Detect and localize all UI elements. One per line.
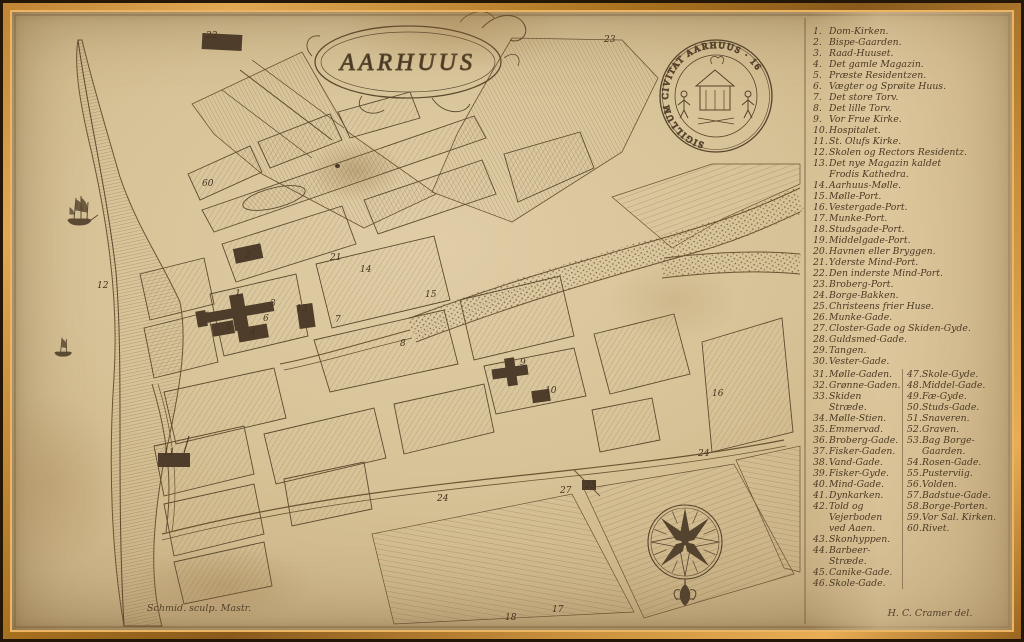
map-number-label: 15 — [425, 290, 437, 300]
ink-fleck — [335, 164, 340, 168]
legend-item: 23.Broberg-Port. — [813, 279, 1009, 290]
map-paper: AARHUUS — [12, 12, 1012, 630]
legend-item-label: Studs-Gade. — [922, 402, 1009, 413]
legend-item: 33.Skiden Stræde. — [813, 391, 902, 413]
legend-item-number: 35. — [813, 424, 829, 435]
map-number-label: 16 — [712, 389, 724, 399]
map-title: AARHUUS — [338, 50, 476, 76]
legend-item-number: 60. — [907, 523, 922, 534]
legend-item-number: 4. — [813, 59, 829, 70]
map-number-label: 14 — [360, 265, 372, 275]
legend-list-right: 47.Skole-Gyde.48.Middel-Gade.49.Fæ-Gyde.… — [902, 369, 1009, 589]
legend-item: 41.Dynkarken. — [813, 490, 902, 501]
legend-item-number: 8. — [813, 103, 829, 114]
legend-item-number: 47. — [907, 369, 922, 380]
legend-panel: 1.Dom-Kirken.2.Bispe-Gaarden.3.Raad-Huus… — [813, 26, 1009, 589]
legend-item-label: Vand-Gade. — [829, 457, 902, 468]
fields — [372, 446, 800, 624]
legend-item-label: Præste Residentzen. — [829, 70, 1009, 81]
legend-item-label: Told og Vejerboden ved Aaen. — [829, 501, 902, 534]
map-number-label: 24 — [697, 449, 710, 459]
seal-figure-left — [678, 91, 690, 118]
legend-item-number: 16. — [813, 202, 829, 213]
map-number-label: 7 — [335, 315, 341, 325]
legend-item: 27.Closter-Gade og Skiden-Gyde. — [813, 323, 1009, 334]
legend-item-number: 41. — [813, 490, 829, 501]
engraver-credit: Schmid. sculp. Mastr. — [147, 603, 251, 614]
legend-item: 52.Graven. — [907, 424, 1009, 435]
legend-item: 44.Barbeer-Stræde. — [813, 545, 902, 567]
legend-item-label: Borge-Porten. — [922, 501, 1009, 512]
legend-item-number: 54. — [907, 457, 922, 468]
author-credit: H. C. Cramer del. — [855, 608, 1005, 619]
map-number-label: 24 — [436, 494, 449, 504]
legend-item-number: 45. — [813, 567, 829, 578]
legend-item-label: Broberg-Port. — [829, 279, 1009, 290]
legend-item-number: 21. — [813, 257, 829, 268]
legend-item: 29.Tangen. — [813, 345, 1009, 356]
legend-item-number: 20. — [813, 246, 829, 257]
legend-item-number: 46. — [813, 578, 829, 589]
map-number-label: 6 — [263, 314, 269, 324]
gilt-frame: AARHUUS — [3, 3, 1021, 639]
legend-item-number: 39. — [813, 468, 829, 479]
legend-item-number: 32. — [813, 380, 829, 391]
legend-item-label: Skiden Stræde. — [829, 391, 902, 413]
legend-item-label: Det gamle Magazin. — [829, 59, 1009, 70]
legend-item-label: Bag Borge- Gaarden. — [922, 435, 1009, 457]
legend-item-number: 36. — [813, 435, 829, 446]
legend-item: 1.Dom-Kirken. — [813, 26, 1009, 37]
legend-item-label: Tangen. — [829, 345, 1009, 356]
map-number-label: 2 — [244, 251, 251, 261]
legend-item-label: Det store Torv. — [829, 92, 1009, 103]
map-number-label: 25 — [584, 481, 597, 491]
legend-item: 3.Raad-Huuset. — [813, 48, 1009, 59]
legend-item: 39.Fisker-Gyde. — [813, 468, 902, 479]
map-number-label: 11 — [163, 448, 174, 458]
legend-item-label: Rosen-Gade. — [922, 457, 1009, 468]
legend-item-label: Grønne-Gaden. — [829, 380, 902, 391]
legend-item: 38.Vand-Gade. — [813, 457, 902, 468]
legend-item-label: Broberg-Gade. — [829, 435, 902, 446]
legend-item: 50.Studs-Gade. — [907, 402, 1009, 413]
legend-item-label: Bispe-Gaarden. — [829, 37, 1009, 48]
legend-item-label: Closter-Gade og Skiden-Gyde. — [829, 323, 1009, 334]
legend-item-number: 53. — [907, 435, 922, 446]
legend-item: 24.Borge-Bakken. — [813, 290, 1009, 301]
legend-item-number: 7. — [813, 92, 829, 103]
map-number-label: 27 — [559, 486, 572, 496]
legend-item: 26.Munke-Gade. — [813, 312, 1009, 323]
legend-item-number: 6. — [813, 81, 829, 92]
legend-item: 48.Middel-Gade. — [907, 380, 1009, 391]
legend-item: 25.Christeens frier Huse. — [813, 301, 1009, 312]
legend-item-label: Middelgade-Port. — [829, 235, 1009, 246]
legend-item-number: 10. — [813, 125, 829, 136]
legend-item-label: Raad-Huuset. — [829, 48, 1009, 59]
legend-item-number: 24. — [813, 290, 829, 301]
map-number-label: 21 — [329, 253, 341, 263]
legend-item-number: 59. — [907, 512, 922, 523]
legend-item-label: Fisker-Gyde. — [829, 468, 902, 479]
legend-item-label: Middel-Gade. — [922, 380, 1009, 391]
legend-item-number: 28. — [813, 334, 829, 345]
legend-item: 14.Aarhuus-Mølle. — [813, 180, 1009, 191]
map-number-label: 60 — [202, 179, 214, 189]
legend-item-label: Mind-Gade. — [829, 479, 902, 490]
legend-item: 35.Emmervad. — [813, 424, 902, 435]
legend-item-number: 38. — [813, 457, 829, 468]
legend-item-number: 57. — [907, 490, 922, 501]
legend-item-label: Skonhyppen. — [829, 534, 902, 545]
legend-item: 51.Snaveren. — [907, 413, 1009, 424]
legend-item-number: 56. — [907, 479, 922, 490]
legend-item-number: 12. — [813, 147, 829, 158]
legend-item-number: 40. — [813, 479, 829, 490]
framed-map-photo: AARHUUS — [0, 0, 1024, 642]
legend-list-left: 31.Mølle-Gaden.32.Grønne-Gaden.33.Skiden… — [813, 369, 902, 589]
legend-item: 20.Havnen eller Bryggen. — [813, 246, 1009, 257]
map-number-label: 9 — [520, 358, 526, 368]
legend-item-number: 17. — [813, 213, 829, 224]
legend-item-number: 25. — [813, 301, 829, 312]
legend-item-label: Vestergade-Port. — [829, 202, 1009, 213]
legend-item-number: 58. — [907, 501, 922, 512]
sailing-ship-large — [68, 196, 98, 225]
legend-item-label: Fisker-Gaden. — [829, 446, 902, 457]
legend-item: 5.Præste Residentzen. — [813, 70, 1009, 81]
legend-item-label: Mølle-Port. — [829, 191, 1009, 202]
legend-item-number: 34. — [813, 413, 829, 424]
sailing-ship-small — [55, 338, 72, 357]
legend-item: 16.Vestergade-Port. — [813, 202, 1009, 213]
legend-item-number: 19. — [813, 235, 829, 246]
legend-item: 31.Mølle-Gaden. — [813, 369, 902, 380]
legend-item: 21.Yderste Mind-Port. — [813, 257, 1009, 268]
legend-item: 42.Told og Vejerboden ved Aaen. — [813, 501, 902, 534]
legend-item: 47.Skole-Gyde. — [907, 369, 1009, 380]
legend-item-number: 49. — [907, 391, 922, 402]
legend-item: 46.Skole-Gade. — [813, 578, 902, 589]
legend-list-main: 1.Dom-Kirken.2.Bispe-Gaarden.3.Raad-Huus… — [813, 26, 1009, 367]
legend-item-number: 1. — [813, 26, 829, 37]
seal-figure-right — [742, 91, 754, 118]
legend-item: 9.Vor Frue Kirke. — [813, 114, 1009, 125]
map-number-label: 13 — [296, 304, 308, 314]
legend-item-label: Vor Sal. Kirken. — [922, 512, 1009, 523]
map-number-label: 23 — [603, 35, 616, 45]
legend-item-number: 27. — [813, 323, 829, 334]
legend-item-number: 33. — [813, 391, 829, 402]
legend-item: 7.Det store Torv. — [813, 92, 1009, 103]
legend-item-label: Vægter og Sprøite Huus. — [829, 81, 1009, 92]
legend-item-number: 37. — [813, 446, 829, 457]
legend-item-label: Borge-Bakken. — [829, 290, 1009, 301]
legend-item: 19.Middelgade-Port. — [813, 235, 1009, 246]
map-number-label: 3 — [270, 299, 276, 309]
frame-inner-lip: AARHUUS — [10, 10, 1014, 632]
map-number-label: 10 — [545, 386, 557, 396]
map-number-label: 4 — [249, 328, 256, 338]
legend-item-label: Vester-Gade. — [829, 356, 1009, 367]
legend-item-label: Guldsmed-Gade. — [829, 334, 1009, 345]
legend-item-label: Det nye Magazin kaldet Frodis Kathedra. — [829, 158, 1009, 180]
legend-item-number: 11. — [813, 136, 829, 147]
legend-item-label: Studsgade-Port. — [829, 224, 1009, 235]
legend-item-number: 50. — [907, 402, 922, 413]
legend-item-label: Skole-Gyde. — [922, 369, 1009, 380]
legend-item-label: Aarhuus-Mølle. — [829, 180, 1009, 191]
legend-item-label: Badstue-Gade. — [922, 490, 1009, 501]
city-seal: SIGILLUM CIVITAT AARHUUS · 16 — [660, 40, 772, 152]
legend-item: 57.Badstue-Gade. — [907, 490, 1009, 501]
legend-item-label: Den inderste Mind-Port. — [829, 268, 1009, 279]
legend-item-number: 52. — [907, 424, 922, 435]
legend-item: 10.Hospitalet. — [813, 125, 1009, 136]
legend-item: 11.St. Olufs Kirke. — [813, 136, 1009, 147]
legend-item: 32.Grønne-Gaden. — [813, 380, 902, 391]
map-number-label: 1 — [235, 289, 241, 299]
legend-item-number: 18. — [813, 224, 829, 235]
legend-item: 18.Studsgade-Port. — [813, 224, 1009, 235]
legend-two-columns: 31.Mølle-Gaden.32.Grønne-Gaden.33.Skiden… — [813, 369, 1009, 589]
legend-item-label: Barbeer-Stræde. — [829, 545, 902, 567]
legend-item-number: 44. — [813, 545, 829, 556]
legend-item-label: Rivet. — [922, 523, 1009, 534]
legend-item-number: 22. — [813, 268, 829, 279]
map-number-label: 17 — [552, 605, 564, 615]
legend-item-label: Skolen og Rectors Residentz. — [829, 147, 1009, 158]
legend-item: 59.Vor Sal. Kirken. — [907, 512, 1009, 523]
map-number-label: 18 — [505, 613, 517, 623]
legend-item-label: Havnen eller Bryggen. — [829, 246, 1009, 257]
legend-item-label: Canike-Gade. — [829, 567, 902, 578]
legend-item: 36.Broberg-Gade. — [813, 435, 902, 446]
legend-item-number: 9. — [813, 114, 829, 125]
legend-item: 43.Skonhyppen. — [813, 534, 902, 545]
legend-item: 4.Det gamle Magazin. — [813, 59, 1009, 70]
legend-item-number: 26. — [813, 312, 829, 323]
legend-item-label: Dynkarken. — [829, 490, 902, 501]
legend-item-label: Snaveren. — [922, 413, 1009, 424]
legend-item-number: 43. — [813, 534, 829, 545]
legend-item: 40.Mind-Gade. — [813, 479, 902, 490]
legend-item: 56.Volden. — [907, 479, 1009, 490]
legend-item-label: Yderste Mind-Port. — [829, 257, 1009, 268]
legend-item: 58.Borge-Porten. — [907, 501, 1009, 512]
legend-item: 55.Pusterviig. — [907, 468, 1009, 479]
legend-item: 22.Den inderste Mind-Port. — [813, 268, 1009, 279]
legend-item: 12.Skolen og Rectors Residentz. — [813, 147, 1009, 158]
legend-item-label: Mølle-Gaden. — [829, 369, 902, 380]
legend-item-number: 48. — [907, 380, 922, 391]
legend-item-number: 51. — [907, 413, 922, 424]
legend-item: 49.Fæ-Gyde. — [907, 391, 1009, 402]
legend-item: 30.Vester-Gade. — [813, 356, 1009, 367]
legend-item-label: Emmervad. — [829, 424, 902, 435]
legend-item: 54.Rosen-Gade. — [907, 457, 1009, 468]
legend-item: 28.Guldsmed-Gade. — [813, 334, 1009, 345]
legend-item-label: Graven. — [922, 424, 1009, 435]
legend-item: 6.Vægter og Sprøite Huus. — [813, 81, 1009, 92]
legend-item: 34.Mølle-Stien. — [813, 413, 902, 424]
legend-item: 17.Munke-Port. — [813, 213, 1009, 224]
legend-item-label: Volden. — [922, 479, 1009, 490]
legend-item: 8.Det lille Torv. — [813, 103, 1009, 114]
legend-item-label: Christeens frier Huse. — [829, 301, 1009, 312]
legend-item-label: Skole-Gade. — [829, 578, 902, 589]
map-number-label: 8 — [400, 339, 406, 349]
legend-item-label: Pusterviig. — [922, 468, 1009, 479]
legend-item-number: 15. — [813, 191, 829, 202]
legend-item: 53.Bag Borge- Gaarden. — [907, 435, 1009, 457]
legend-item-label: Munke-Gade. — [829, 312, 1009, 323]
map-number-label: 12 — [97, 281, 109, 291]
legend-item-label: Fæ-Gyde. — [922, 391, 1009, 402]
legend-item-number: 55. — [907, 468, 922, 479]
map-number-label: 5 — [226, 323, 232, 333]
legend-item: 13.Det nye Magazin kaldet Frodis Kathedr… — [813, 158, 1009, 180]
legend-item-number: 42. — [813, 501, 829, 512]
legend-item: 2.Bispe-Gaarden. — [813, 37, 1009, 48]
legend-item-number: 13. — [813, 158, 829, 169]
legend-item-number: 29. — [813, 345, 829, 356]
legend-item: 37.Fisker-Gaden. — [813, 446, 902, 457]
legend-item-label: St. Olufs Kirke. — [829, 136, 1009, 147]
legend-item: 45.Canike-Gade. — [813, 567, 902, 578]
legend-item-label: Hospitalet. — [829, 125, 1009, 136]
legend-item: 15.Mølle-Port. — [813, 191, 1009, 202]
legend-item-label: Dom-Kirken. — [829, 26, 1009, 37]
legend-item-number: 3. — [813, 48, 829, 59]
legend-item-label: Mølle-Stien. — [829, 413, 902, 424]
legend-item-number: 31. — [813, 369, 829, 380]
legend-item: 60.Rivet. — [907, 523, 1009, 534]
legend-item-number: 14. — [813, 180, 829, 191]
legend-item-number: 23. — [813, 279, 829, 290]
legend-item-number: 30. — [813, 356, 829, 367]
map-number-label: 22 — [205, 31, 218, 41]
legend-item-label: Vor Frue Kirke. — [829, 114, 1009, 125]
legend-item-label: Munke-Port. — [829, 213, 1009, 224]
legend-item-number: 2. — [813, 37, 829, 48]
legend-item-label: Det lille Torv. — [829, 103, 1009, 114]
legend-item-number: 5. — [813, 70, 829, 81]
